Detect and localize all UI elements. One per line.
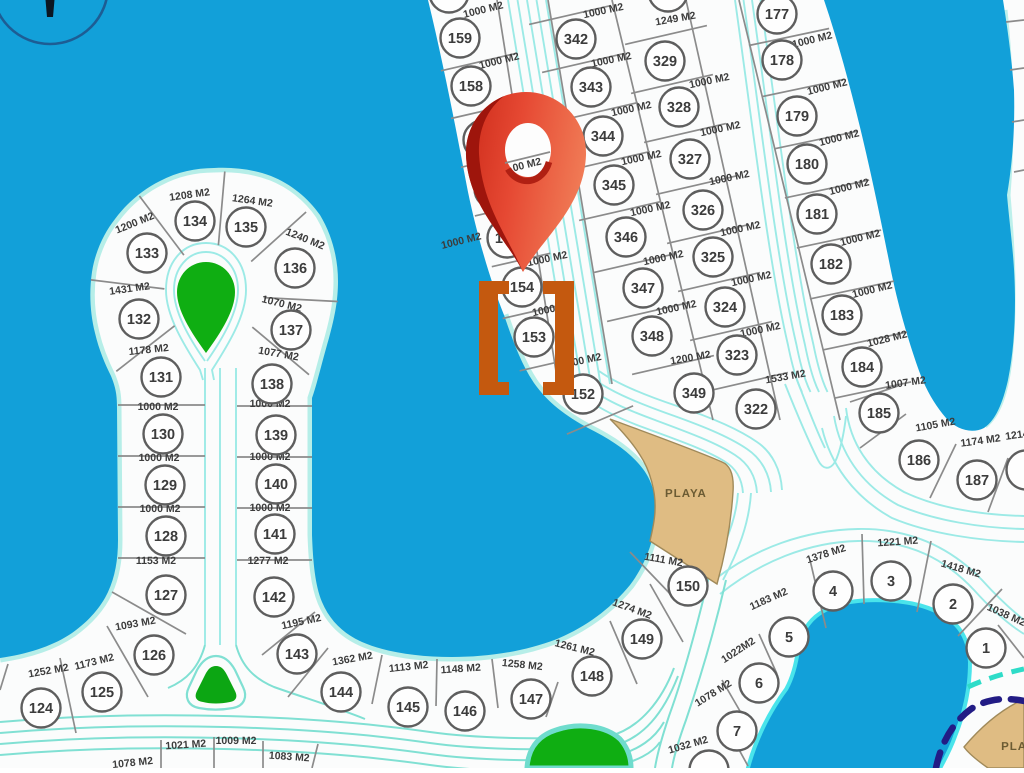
svg-text:343: 343 — [579, 80, 603, 96]
svg-text:1: 1 — [982, 641, 990, 657]
svg-text:124: 124 — [29, 701, 53, 717]
svg-text:327: 327 — [678, 152, 702, 168]
svg-text:184: 184 — [850, 360, 874, 376]
svg-text:347: 347 — [631, 281, 655, 297]
svg-text:6: 6 — [755, 676, 763, 692]
svg-text:125: 125 — [90, 685, 114, 701]
svg-text:158: 158 — [459, 79, 483, 95]
svg-text:150: 150 — [676, 579, 700, 595]
svg-text:133: 133 — [135, 246, 159, 262]
svg-text:PLAYA: PLAYA — [1001, 741, 1024, 753]
svg-text:346: 346 — [614, 230, 638, 246]
svg-text:136: 136 — [283, 261, 307, 277]
svg-text:5: 5 — [785, 630, 793, 646]
svg-text:145: 145 — [396, 700, 420, 716]
svg-text:128: 128 — [154, 529, 178, 545]
svg-text:139: 139 — [264, 428, 288, 444]
svg-text:152: 152 — [571, 387, 595, 403]
svg-text:322: 322 — [744, 402, 768, 418]
svg-text:345: 345 — [602, 178, 626, 194]
svg-text:178: 178 — [770, 53, 794, 69]
svg-text:324: 324 — [713, 300, 737, 316]
svg-text:129: 129 — [153, 478, 177, 494]
svg-text:144: 144 — [329, 685, 353, 701]
svg-text:342: 342 — [564, 32, 588, 48]
svg-text:137: 137 — [279, 323, 303, 339]
svg-text:7: 7 — [733, 724, 741, 740]
svg-text:127: 127 — [154, 588, 178, 604]
svg-text:132: 132 — [127, 312, 151, 328]
svg-text:2: 2 — [949, 597, 957, 613]
svg-text:141: 141 — [263, 527, 287, 543]
svg-text:PLAYA: PLAYA — [665, 488, 707, 500]
svg-text:153: 153 — [522, 330, 546, 346]
svg-text:186: 186 — [907, 453, 931, 469]
svg-text:344: 344 — [591, 129, 615, 145]
svg-text:325: 325 — [701, 250, 725, 266]
svg-text:329: 329 — [653, 54, 677, 70]
svg-text:177: 177 — [765, 7, 789, 23]
svg-text:149: 149 — [630, 632, 654, 648]
svg-text:154: 154 — [510, 280, 534, 296]
svg-text:140: 140 — [264, 477, 288, 493]
svg-text:148: 148 — [580, 669, 604, 685]
svg-text:1277 M2: 1277 M2 — [248, 555, 289, 567]
svg-text:187: 187 — [965, 473, 989, 489]
svg-text:142: 142 — [262, 590, 286, 606]
svg-text:134: 134 — [183, 214, 207, 230]
svg-text:147: 147 — [519, 692, 543, 708]
svg-text:182: 182 — [819, 257, 843, 273]
svg-text:131: 131 — [149, 370, 173, 386]
svg-text:130: 130 — [151, 427, 175, 443]
svg-text:1000 M2: 1000 M2 — [138, 401, 179, 413]
svg-text:159: 159 — [448, 31, 472, 47]
svg-text:135: 135 — [234, 220, 258, 236]
svg-text:348: 348 — [640, 329, 664, 345]
svg-text:179: 179 — [785, 109, 809, 125]
svg-text:185: 185 — [867, 406, 891, 422]
svg-text:323: 323 — [725, 348, 749, 364]
svg-text:328: 328 — [667, 100, 691, 116]
svg-text:4: 4 — [829, 584, 837, 600]
svg-text:3: 3 — [887, 574, 895, 590]
svg-text:180: 180 — [795, 157, 819, 173]
svg-text:138: 138 — [260, 377, 284, 393]
svg-text:181: 181 — [805, 207, 829, 223]
svg-text:143: 143 — [285, 647, 309, 663]
svg-text:146: 146 — [453, 704, 477, 720]
svg-text:1153 M2: 1153 M2 — [136, 555, 176, 567]
svg-text:183: 183 — [830, 308, 854, 324]
svg-text:126: 126 — [142, 648, 166, 664]
svg-text:326: 326 — [691, 203, 715, 219]
svg-text:1009 M2: 1009 M2 — [216, 735, 257, 747]
svg-text:349: 349 — [682, 386, 706, 402]
